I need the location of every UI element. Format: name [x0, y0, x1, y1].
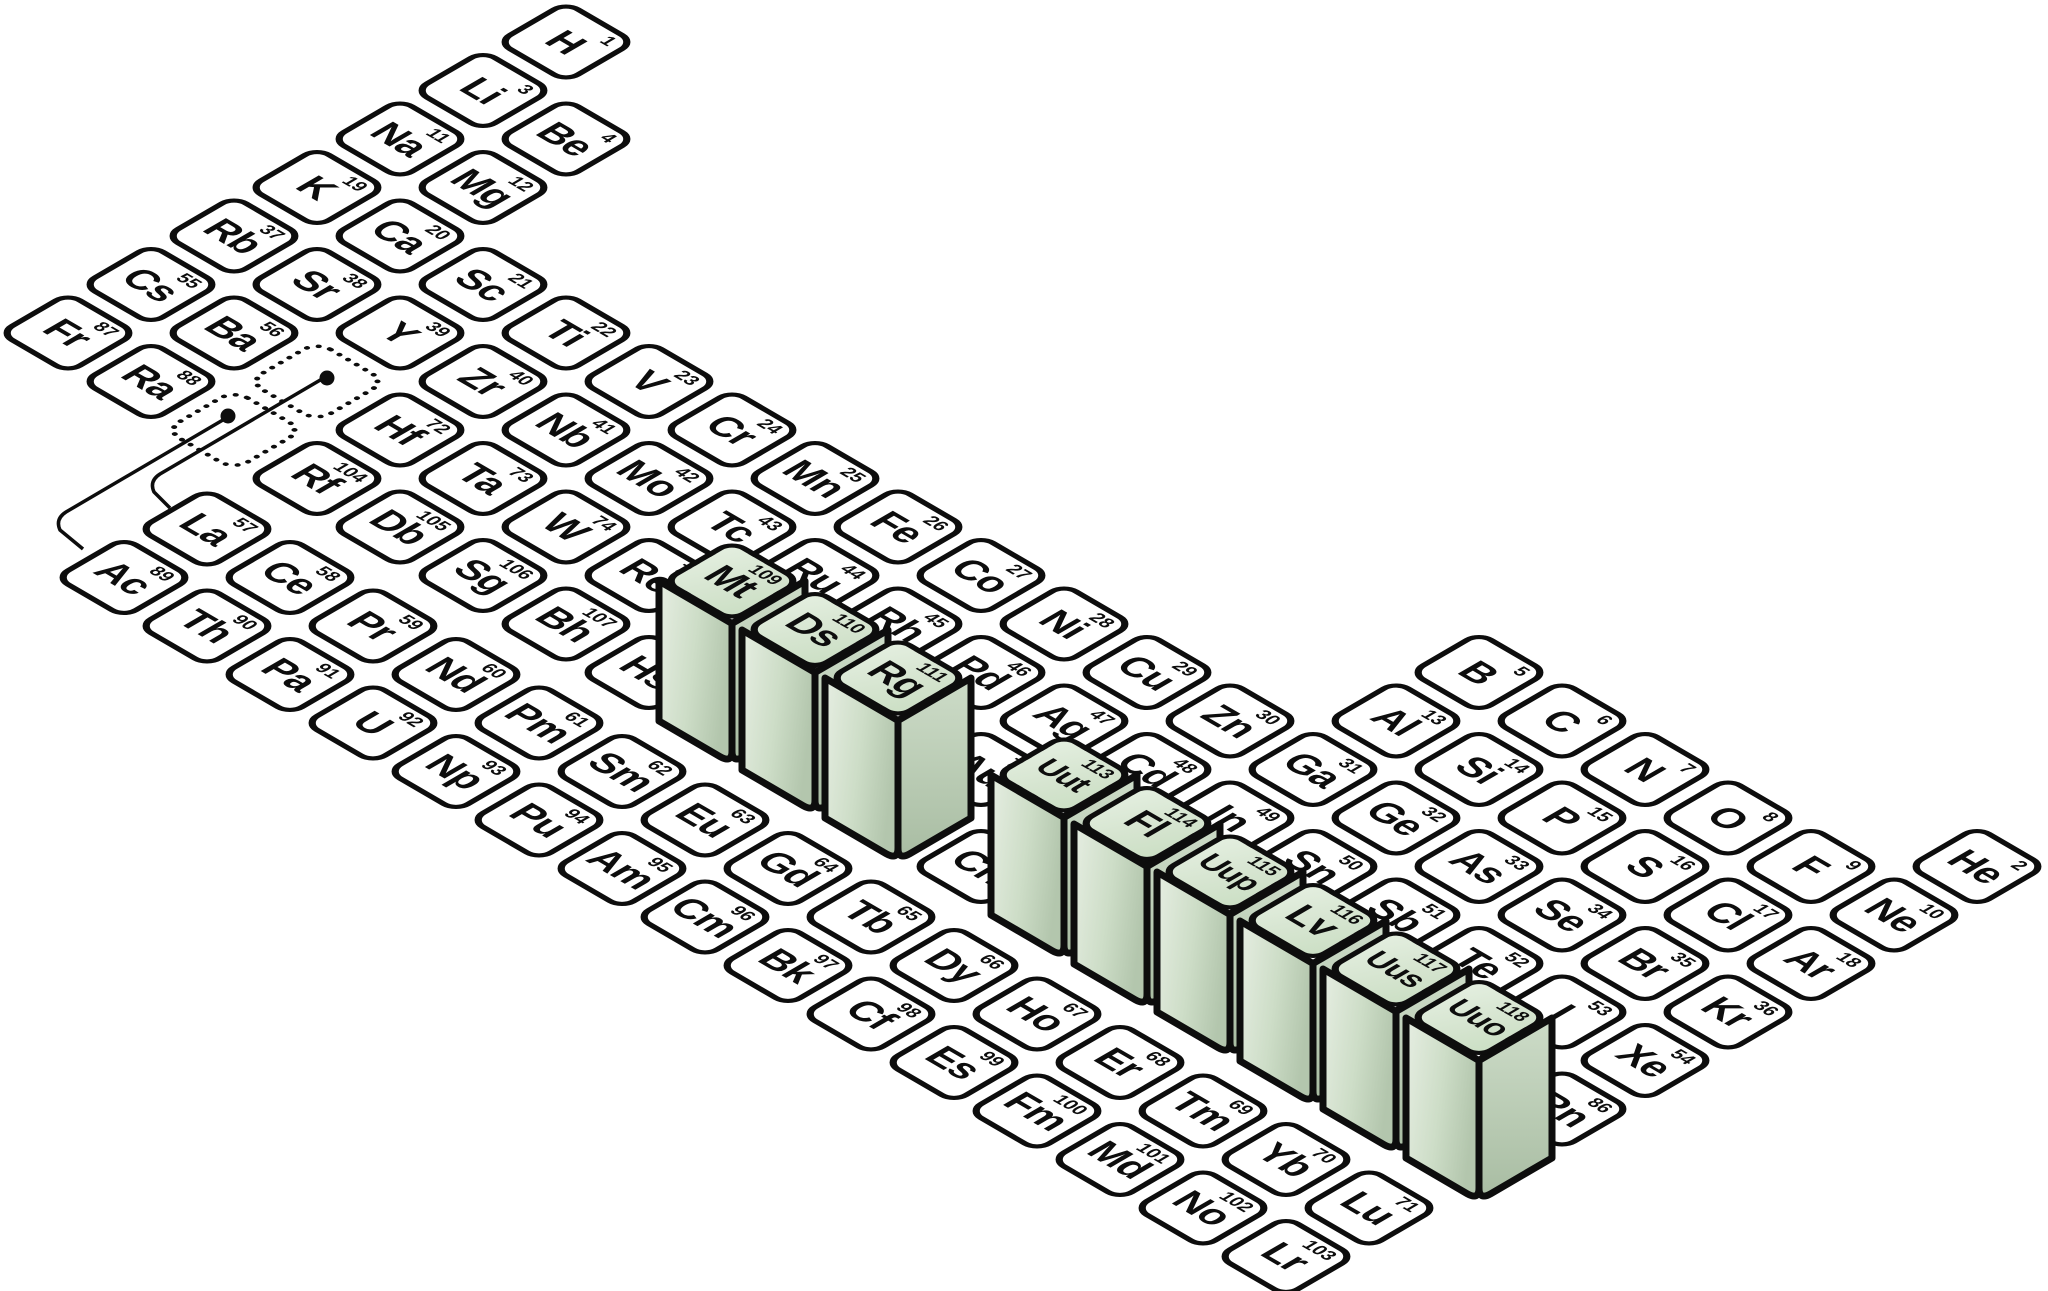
isometric-periodic-table: 1H2He3Li4Be5B6C7N8O9F10Ne11Na12Mg13Al14S… [0, 0, 2048, 1291]
